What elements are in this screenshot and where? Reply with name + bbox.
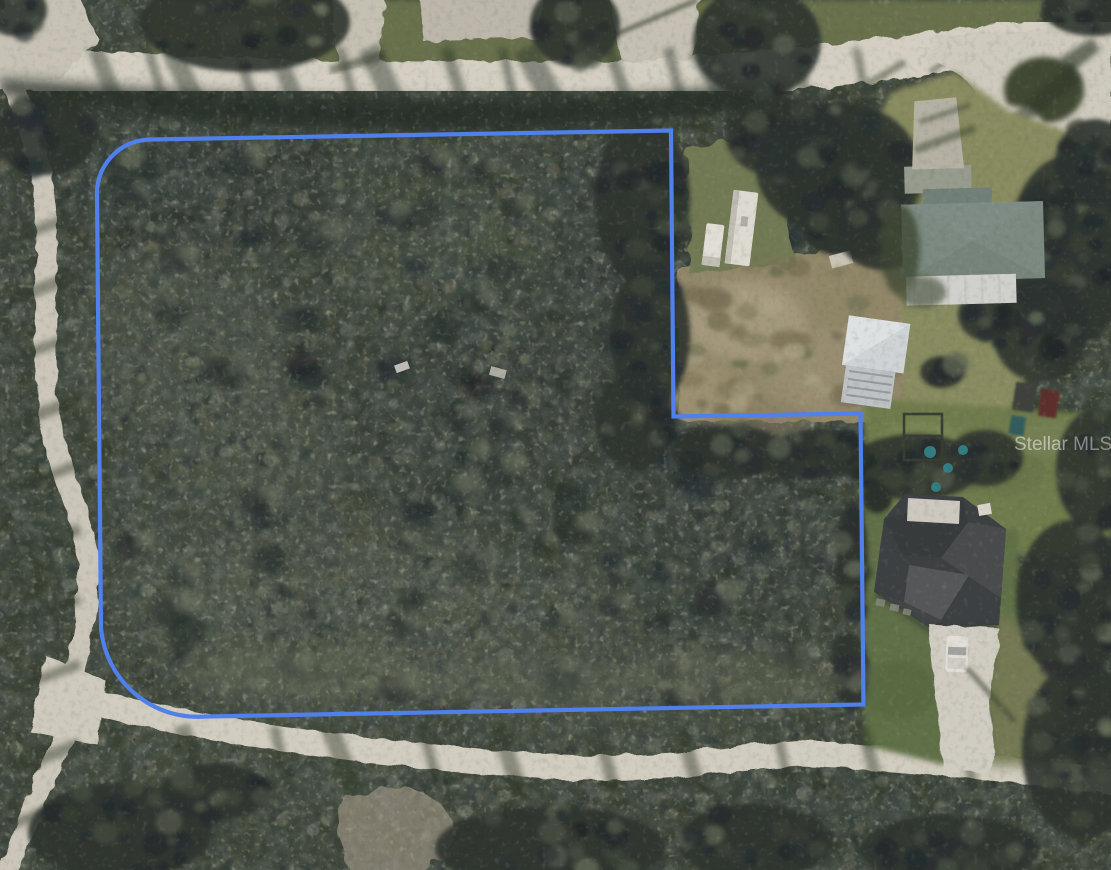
svg-text:Stellar MLS: Stellar MLS: [1014, 434, 1111, 455]
